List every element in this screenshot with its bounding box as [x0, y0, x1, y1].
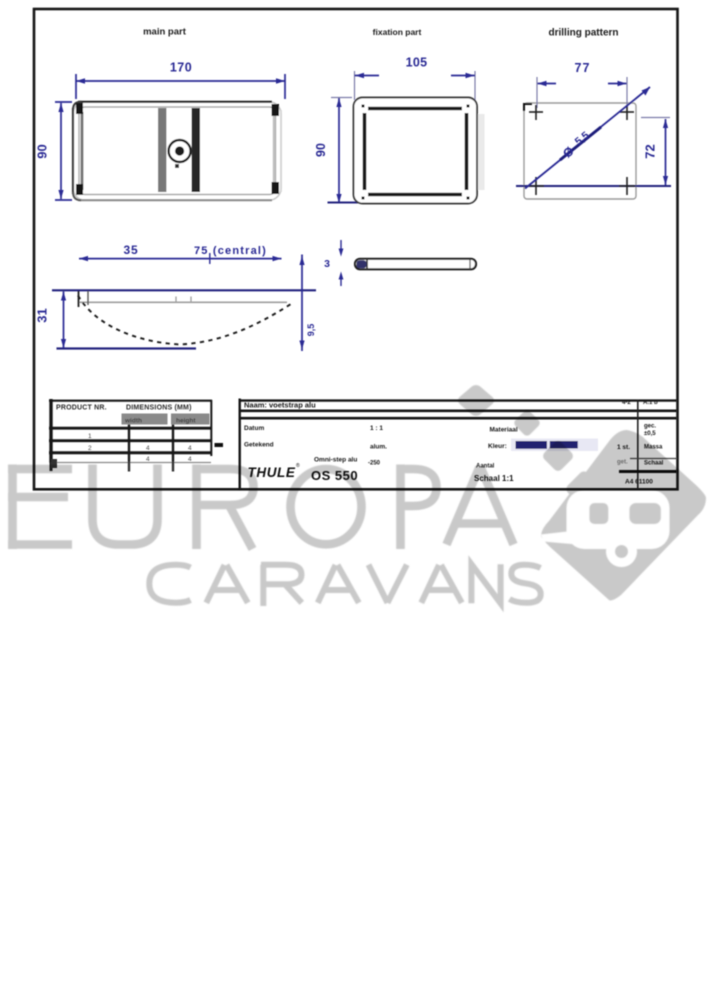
svg-text:-250: -250: [368, 461, 381, 467]
svg-text:width: width: [124, 418, 142, 425]
svg-text:4: 4: [188, 445, 192, 452]
svg-text:A.1 b: A.1 b: [643, 400, 658, 406]
svg-text:35: 35: [124, 243, 139, 257]
svg-text:1 : 1: 1 : 1: [370, 425, 383, 432]
svg-text:105: 105: [406, 56, 428, 70]
svg-text:4: 4: [146, 445, 150, 452]
svg-text:Omni-step alu: Omni-step alu: [314, 457, 357, 464]
svg-text:fixation part: fixation part: [373, 27, 422, 37]
svg-text:5,5: 5,5: [573, 129, 592, 148]
svg-text:77: 77: [575, 61, 591, 75]
svg-text:drilling pattern: drilling pattern: [549, 28, 619, 39]
svg-text:Getekend: Getekend: [244, 442, 274, 449]
svg-text:®: ®: [296, 462, 300, 469]
svg-text:Materiaal: Materiaal: [490, 427, 518, 434]
svg-text:4: 4: [188, 456, 192, 463]
svg-text:Naam: voetstrap alu: Naam: voetstrap alu: [244, 401, 316, 410]
svg-text:1: 1: [88, 433, 92, 440]
svg-text:72: 72: [643, 144, 658, 158]
svg-text:4: 4: [146, 456, 150, 463]
svg-text:±0,5: ±0,5: [644, 431, 656, 437]
svg-text:Kleur:: Kleur:: [488, 443, 507, 450]
svg-text:75 (central): 75 (central): [194, 245, 267, 257]
svg-text:gec.: gec.: [644, 424, 656, 430]
svg-text:main part: main part: [143, 27, 187, 38]
svg-text:DIMENSIONS (MM): DIMENSIONS (MM): [126, 405, 192, 412]
svg-text:Datum: Datum: [244, 425, 264, 432]
svg-text:90: 90: [314, 143, 328, 157]
svg-text:90: 90: [35, 144, 50, 158]
svg-text:PRODUCT NR.: PRODUCT NR.: [56, 405, 107, 412]
svg-text:alum.: alum.: [370, 444, 387, 451]
svg-text:3: 3: [324, 258, 330, 270]
svg-text:2: 2: [88, 445, 92, 452]
svg-text:4-2: 4-2: [622, 400, 631, 406]
svg-text:170: 170: [170, 61, 192, 75]
svg-text:31: 31: [35, 308, 50, 322]
svg-text:height: height: [176, 418, 196, 425]
svg-text:9,5: 9,5: [306, 324, 316, 337]
